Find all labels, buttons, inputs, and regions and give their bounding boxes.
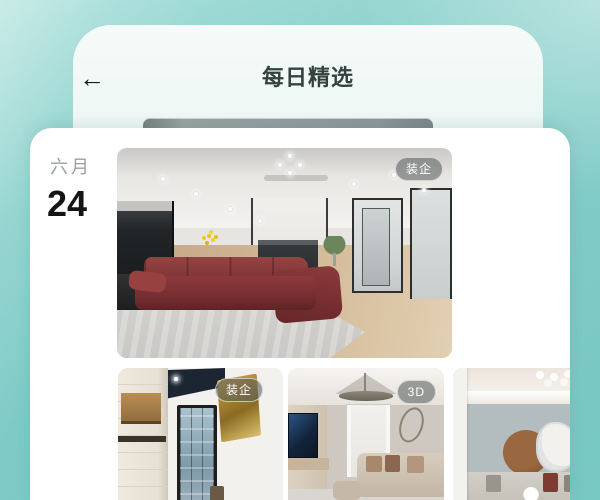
photo-badge: 装企	[395, 157, 443, 181]
cove-light-illustration	[453, 391, 570, 403]
flowers-illustration	[522, 487, 540, 500]
ceiling-illustration	[453, 368, 570, 391]
wall-column-illustration	[453, 368, 467, 500]
photo-badge: 装企	[215, 378, 263, 402]
cabinets-illustration	[118, 368, 168, 500]
counter-illustration	[118, 436, 166, 442]
chandelier-illustration	[339, 391, 392, 400]
date-month: 六月	[50, 153, 92, 179]
stool-illustration	[210, 486, 223, 500]
chandelier-illustration	[364, 373, 366, 393]
date-day: 24	[47, 186, 87, 222]
floral-art-illustration	[536, 422, 571, 472]
tv-illustration	[288, 413, 318, 458]
thumbnail-photo-2[interactable]: 3D	[288, 368, 444, 500]
daily-pick-card: 六月 24 装企	[30, 128, 570, 500]
cushion-illustration	[366, 456, 382, 472]
featured-photo[interactable]: 装企	[117, 148, 452, 358]
photo-badge: 3D	[397, 380, 436, 404]
tv-cabinet-illustration	[288, 458, 329, 470]
cushion-illustration	[385, 455, 401, 472]
cushion-illustration	[543, 473, 558, 492]
ceiling-decor-illustration	[536, 371, 544, 379]
thumbnail-photo-3[interactable]	[453, 368, 570, 500]
cushion-illustration	[486, 475, 501, 492]
ottoman-illustration	[333, 481, 361, 500]
page-title: 每日精选	[73, 61, 543, 95]
thumbnail-photo-1[interactable]: 装企	[118, 368, 283, 500]
cushion-illustration	[407, 456, 424, 473]
shelf-niche-illustration	[121, 393, 161, 424]
screen: ← 每日精选 六月 24	[0, 0, 600, 500]
cushion-illustration	[564, 475, 570, 492]
